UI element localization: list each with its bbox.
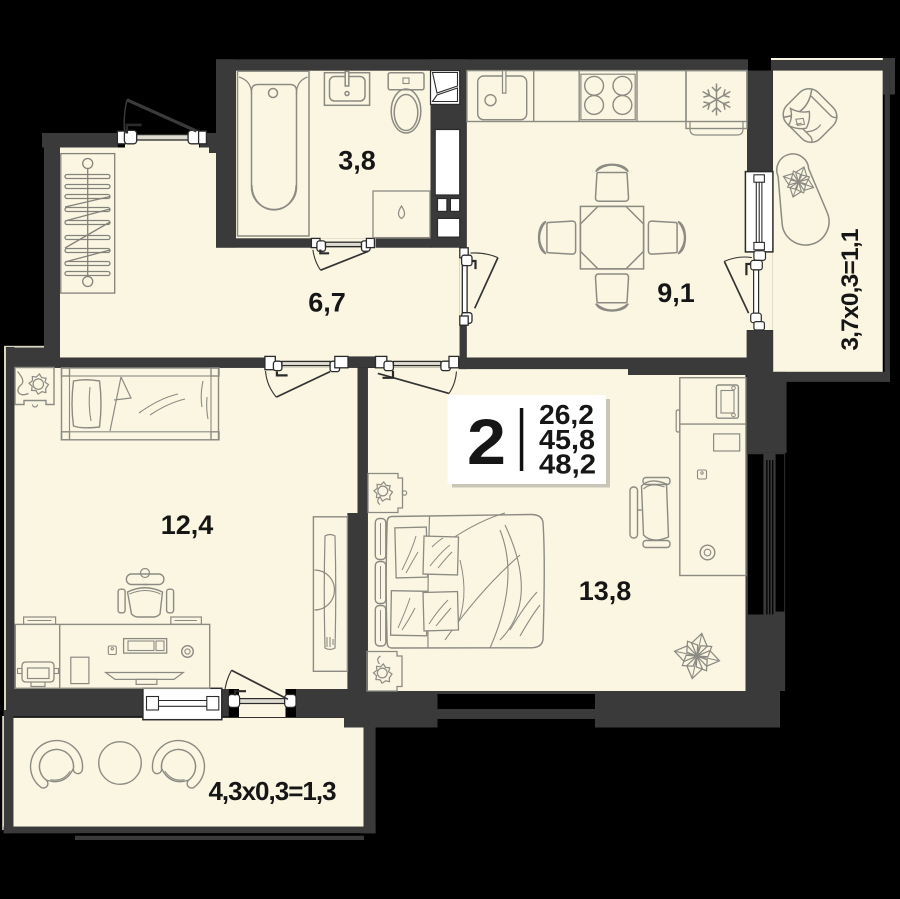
svg-text:3,8: 3,8 — [338, 146, 376, 176]
svg-text:3,7х0,3=1,1: 3,7х0,3=1,1 — [837, 229, 864, 350]
svg-text:12,4: 12,4 — [161, 510, 214, 540]
svg-text:13,8: 13,8 — [579, 576, 632, 606]
svg-text:2: 2 — [467, 406, 506, 478]
svg-text:6,7: 6,7 — [308, 288, 346, 318]
svg-text:48,2: 48,2 — [539, 449, 596, 480]
svg-text:9,1: 9,1 — [657, 278, 695, 308]
svg-text:4,3х0,3=1,3: 4,3х0,3=1,3 — [208, 776, 336, 806]
